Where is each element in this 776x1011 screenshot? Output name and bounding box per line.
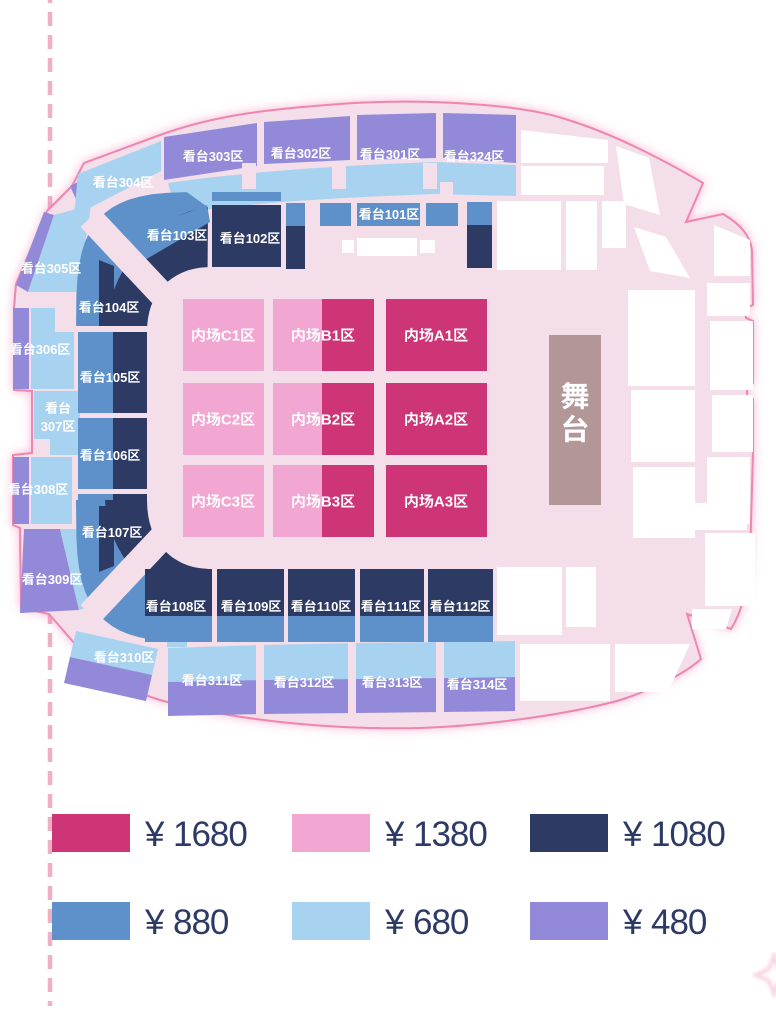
svg-text:105: 105 xyxy=(106,370,128,385)
svg-text:310: 310 xyxy=(120,650,142,665)
svg-text:313: 313 xyxy=(388,675,410,690)
svg-text:307: 307 xyxy=(41,419,63,434)
svg-text:101: 101 xyxy=(385,207,407,222)
svg-text:A2: A2 xyxy=(434,412,453,429)
svg-text:308: 308 xyxy=(34,482,56,497)
svg-text:309: 309 xyxy=(48,572,70,587)
svg-text:680: 680 xyxy=(413,903,469,942)
svg-text:314: 314 xyxy=(473,677,495,692)
svg-text:312: 312 xyxy=(300,675,322,690)
svg-text:C3: C3 xyxy=(221,494,240,511)
svg-text:305: 305 xyxy=(47,261,69,276)
svg-text:C1: C1 xyxy=(221,328,240,345)
svg-text:110: 110 xyxy=(317,599,339,614)
svg-text:B1: B1 xyxy=(321,328,340,345)
svg-text:111: 111 xyxy=(387,599,409,614)
svg-text:A1: A1 xyxy=(434,328,453,345)
svg-text:A3: A3 xyxy=(434,494,453,511)
svg-text:301: 301 xyxy=(386,147,408,162)
svg-text:302: 302 xyxy=(297,146,319,161)
svg-text:107: 107 xyxy=(108,525,130,540)
svg-text:108: 108 xyxy=(172,599,194,614)
svg-text:¥: ¥ xyxy=(384,815,405,854)
svg-text:¥: ¥ xyxy=(622,903,643,942)
svg-text:¥: ¥ xyxy=(384,903,405,942)
svg-text:304: 304 xyxy=(119,175,141,190)
svg-text:1080: 1080 xyxy=(651,815,725,854)
svg-text:480: 480 xyxy=(651,903,707,942)
svg-text:B3: B3 xyxy=(321,494,340,511)
svg-text:¥: ¥ xyxy=(144,815,165,854)
svg-text:¥: ¥ xyxy=(144,903,165,942)
svg-text:106: 106 xyxy=(106,448,128,463)
svg-text:C2: C2 xyxy=(221,412,240,429)
svg-text:102: 102 xyxy=(246,231,268,246)
svg-text:303: 303 xyxy=(209,149,231,164)
svg-text:¥: ¥ xyxy=(622,815,643,854)
svg-text:306: 306 xyxy=(36,342,58,357)
svg-text:103: 103 xyxy=(173,228,195,243)
svg-text:112: 112 xyxy=(456,599,478,614)
svg-text:B2: B2 xyxy=(321,412,340,429)
svg-text:1680: 1680 xyxy=(173,815,247,854)
svg-text:1380: 1380 xyxy=(413,815,487,854)
svg-text:109: 109 xyxy=(247,599,269,614)
svg-text:324: 324 xyxy=(470,149,492,164)
svg-text:880: 880 xyxy=(173,903,229,942)
svg-text:311: 311 xyxy=(208,673,230,688)
svg-text:104: 104 xyxy=(105,300,127,315)
